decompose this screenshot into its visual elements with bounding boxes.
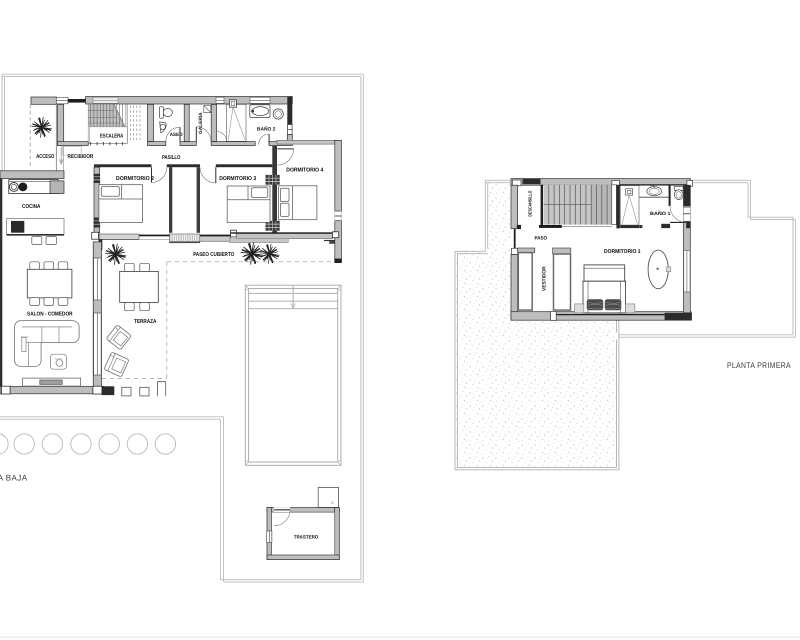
svg-text:ASEO: ASEO (170, 132, 183, 138)
svg-text:ACCESO: ACCESO (36, 154, 54, 160)
svg-text:PASILLO: PASILLO (162, 155, 181, 161)
svg-text:PASEO CUBIERTO: PASEO CUBIERTO (193, 252, 235, 258)
svg-text:DORMITORIO 2: DORMITORIO 2 (116, 176, 154, 182)
svg-text:TRASTERO: TRASTERO (294, 535, 319, 541)
svg-text:DORMITORIO 4: DORMITORIO 4 (286, 168, 324, 174)
svg-text:PLANTA BAJA: PLANTA BAJA (0, 473, 28, 482)
svg-text:SALON - COMEDOR: SALON - COMEDOR (27, 312, 73, 318)
svg-text:BAÑO 2: BAÑO 2 (257, 126, 276, 133)
svg-text:ESCALERA: ESCALERA (100, 134, 123, 140)
svg-text:DORMITORIO 1: DORMITORIO 1 (604, 249, 641, 255)
svg-text:DORMITORIO 3: DORMITORIO 3 (219, 176, 256, 182)
svg-text:GALERIA: GALERIA (198, 112, 204, 134)
svg-text:TERRAZA: TERRAZA (134, 319, 157, 325)
svg-text:PLANTA PRIMERA: PLANTA PRIMERA (727, 361, 791, 370)
svg-text:VESTIDOR: VESTIDOR (541, 266, 547, 291)
svg-text:BAÑO 1: BAÑO 1 (650, 210, 671, 217)
svg-text:PASO: PASO (535, 236, 548, 242)
svg-text:COCINA: COCINA (22, 204, 41, 210)
svg-text:DESCANSILLO: DESCANSILLO (528, 190, 533, 216)
